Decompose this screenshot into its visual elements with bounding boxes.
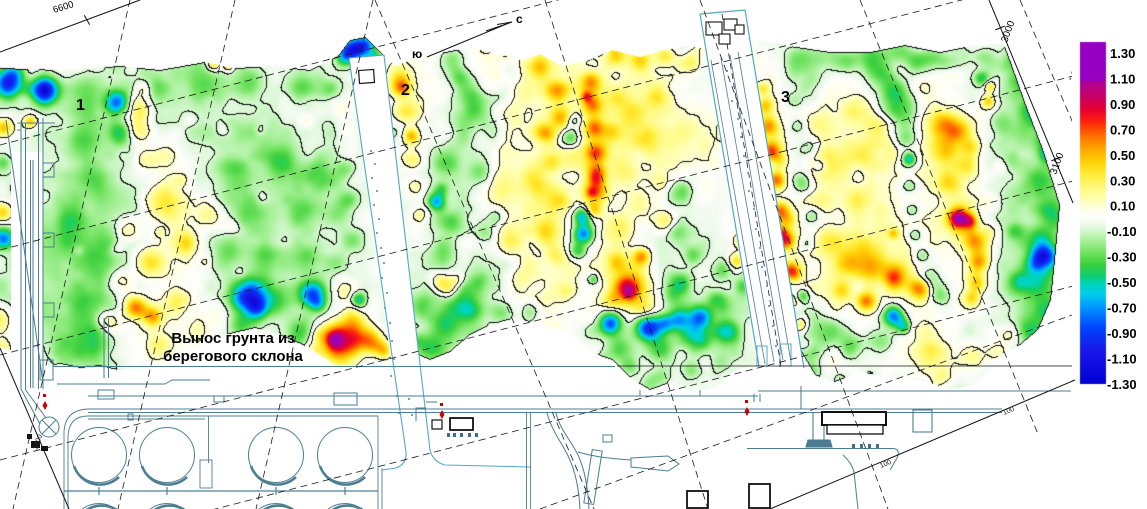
svg-text:ю: ю — [412, 47, 422, 61]
svg-text:-0.90: -0.90 — [1107, 326, 1137, 341]
svg-text:с: с — [516, 12, 523, 26]
svg-text:3: 3 — [781, 89, 790, 106]
svg-text:0.70: 0.70 — [1110, 122, 1135, 137]
svg-text:1.30: 1.30 — [1110, 46, 1135, 61]
svg-text:0.10: 0.10 — [1110, 199, 1135, 214]
svg-text:6600: 6600 — [52, 0, 75, 16]
svg-text:3000: 3000 — [999, 19, 1017, 44]
svg-text:-0.70: -0.70 — [1107, 301, 1137, 316]
svg-text:-0.50: -0.50 — [1107, 275, 1137, 290]
svg-text:берегового склона: берегового склона — [163, 348, 303, 365]
svg-text:-0.10: -0.10 — [1107, 224, 1137, 239]
svg-text:-1.30: -1.30 — [1107, 377, 1137, 392]
svg-text:100: 100 — [1002, 406, 1016, 417]
svg-text:Вынос грунта из: Вынос грунта из — [171, 330, 294, 347]
svg-text:0.30: 0.30 — [1110, 173, 1135, 188]
svg-text:1: 1 — [76, 97, 85, 114]
svg-text:0.90: 0.90 — [1110, 97, 1135, 112]
svg-text:2: 2 — [401, 82, 410, 99]
svg-text:1.10: 1.10 — [1110, 72, 1135, 87]
svg-text:0.50: 0.50 — [1110, 148, 1135, 163]
svg-text:-1.10: -1.10 — [1107, 351, 1137, 366]
svg-text:3100: 3100 — [1048, 151, 1066, 176]
svg-text:-0.30: -0.30 — [1107, 250, 1137, 265]
